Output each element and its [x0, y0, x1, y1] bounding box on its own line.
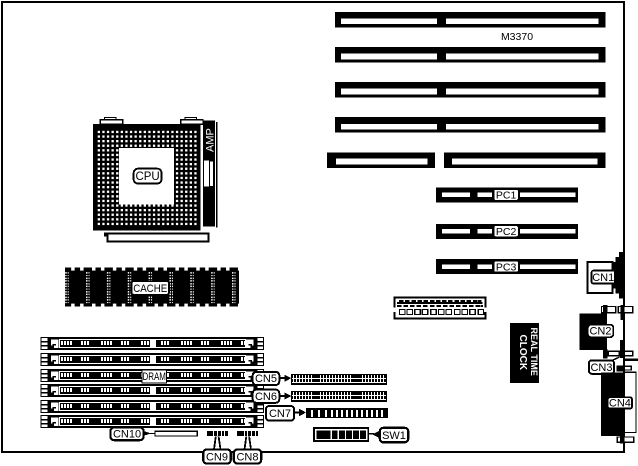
- svg-text:CN6: CN6: [255, 391, 277, 403]
- svg-text:CPU: CPU: [135, 171, 159, 183]
- svg-text:CN2: CN2: [589, 326, 611, 338]
- svg-text:CN4: CN4: [609, 398, 631, 410]
- svg-text:CACHE: CACHE: [133, 283, 167, 295]
- svg-text:CN1: CN1: [592, 272, 614, 284]
- svg-text:CLOCK: CLOCK: [517, 335, 528, 371]
- svg-text:REAL TIME: REAL TIME: [529, 328, 539, 376]
- svg-text:SW1: SW1: [382, 430, 406, 442]
- svg-text:CN9: CN9: [206, 452, 228, 464]
- svg-text:CN7: CN7: [269, 408, 291, 420]
- svg-text:PC3: PC3: [496, 261, 517, 273]
- svg-text:CN8: CN8: [236, 452, 258, 464]
- svg-text:CN3: CN3: [590, 362, 612, 374]
- svg-text:M3370: M3370: [501, 31, 533, 43]
- svg-text:PC1: PC1: [496, 190, 517, 202]
- svg-text:AMP: AMP: [205, 128, 217, 152]
- svg-text:CN5: CN5: [255, 373, 277, 385]
- svg-text:DRAM: DRAM: [142, 371, 166, 383]
- svg-text:PC2: PC2: [496, 226, 517, 238]
- svg-text:CN10: CN10: [113, 429, 141, 441]
